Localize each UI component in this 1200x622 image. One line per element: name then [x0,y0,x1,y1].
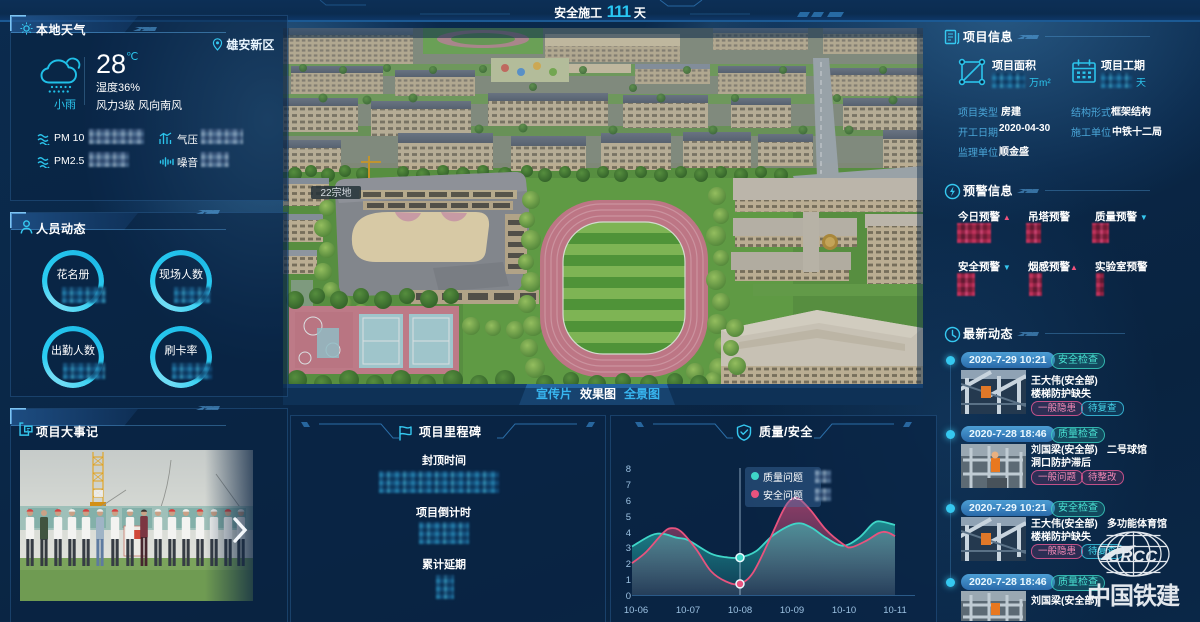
svg-text:1: 1 [626,575,631,586]
svg-text:CRCC: CRCC [1108,548,1158,566]
svg-text:10-10: 10-10 [832,605,856,616]
svg-text:3: 3 [626,543,631,554]
svg-text:5: 5 [626,512,631,523]
svg-text:8: 8 [626,464,631,475]
svg-text:中国铁建: 中国铁建 [1087,583,1180,609]
svg-text:10-06: 10-06 [624,605,648,616]
svg-text:10-11: 10-11 [883,605,907,616]
svg-text:2: 2 [626,559,631,570]
svg-text:全景图: 全景图 [623,386,660,401]
svg-text:0: 0 [626,591,631,602]
svg-text:宣传片: 宣传片 [536,386,572,401]
svg-text:7: 7 [626,480,631,491]
svg-text:10-07: 10-07 [676,605,700,616]
svg-text:6: 6 [626,496,631,507]
svg-text:效果图: 效果图 [580,386,616,401]
svg-text:10-09: 10-09 [780,605,804,616]
svg-text:10-08: 10-08 [728,605,752,616]
svg-text:4: 4 [626,528,631,539]
